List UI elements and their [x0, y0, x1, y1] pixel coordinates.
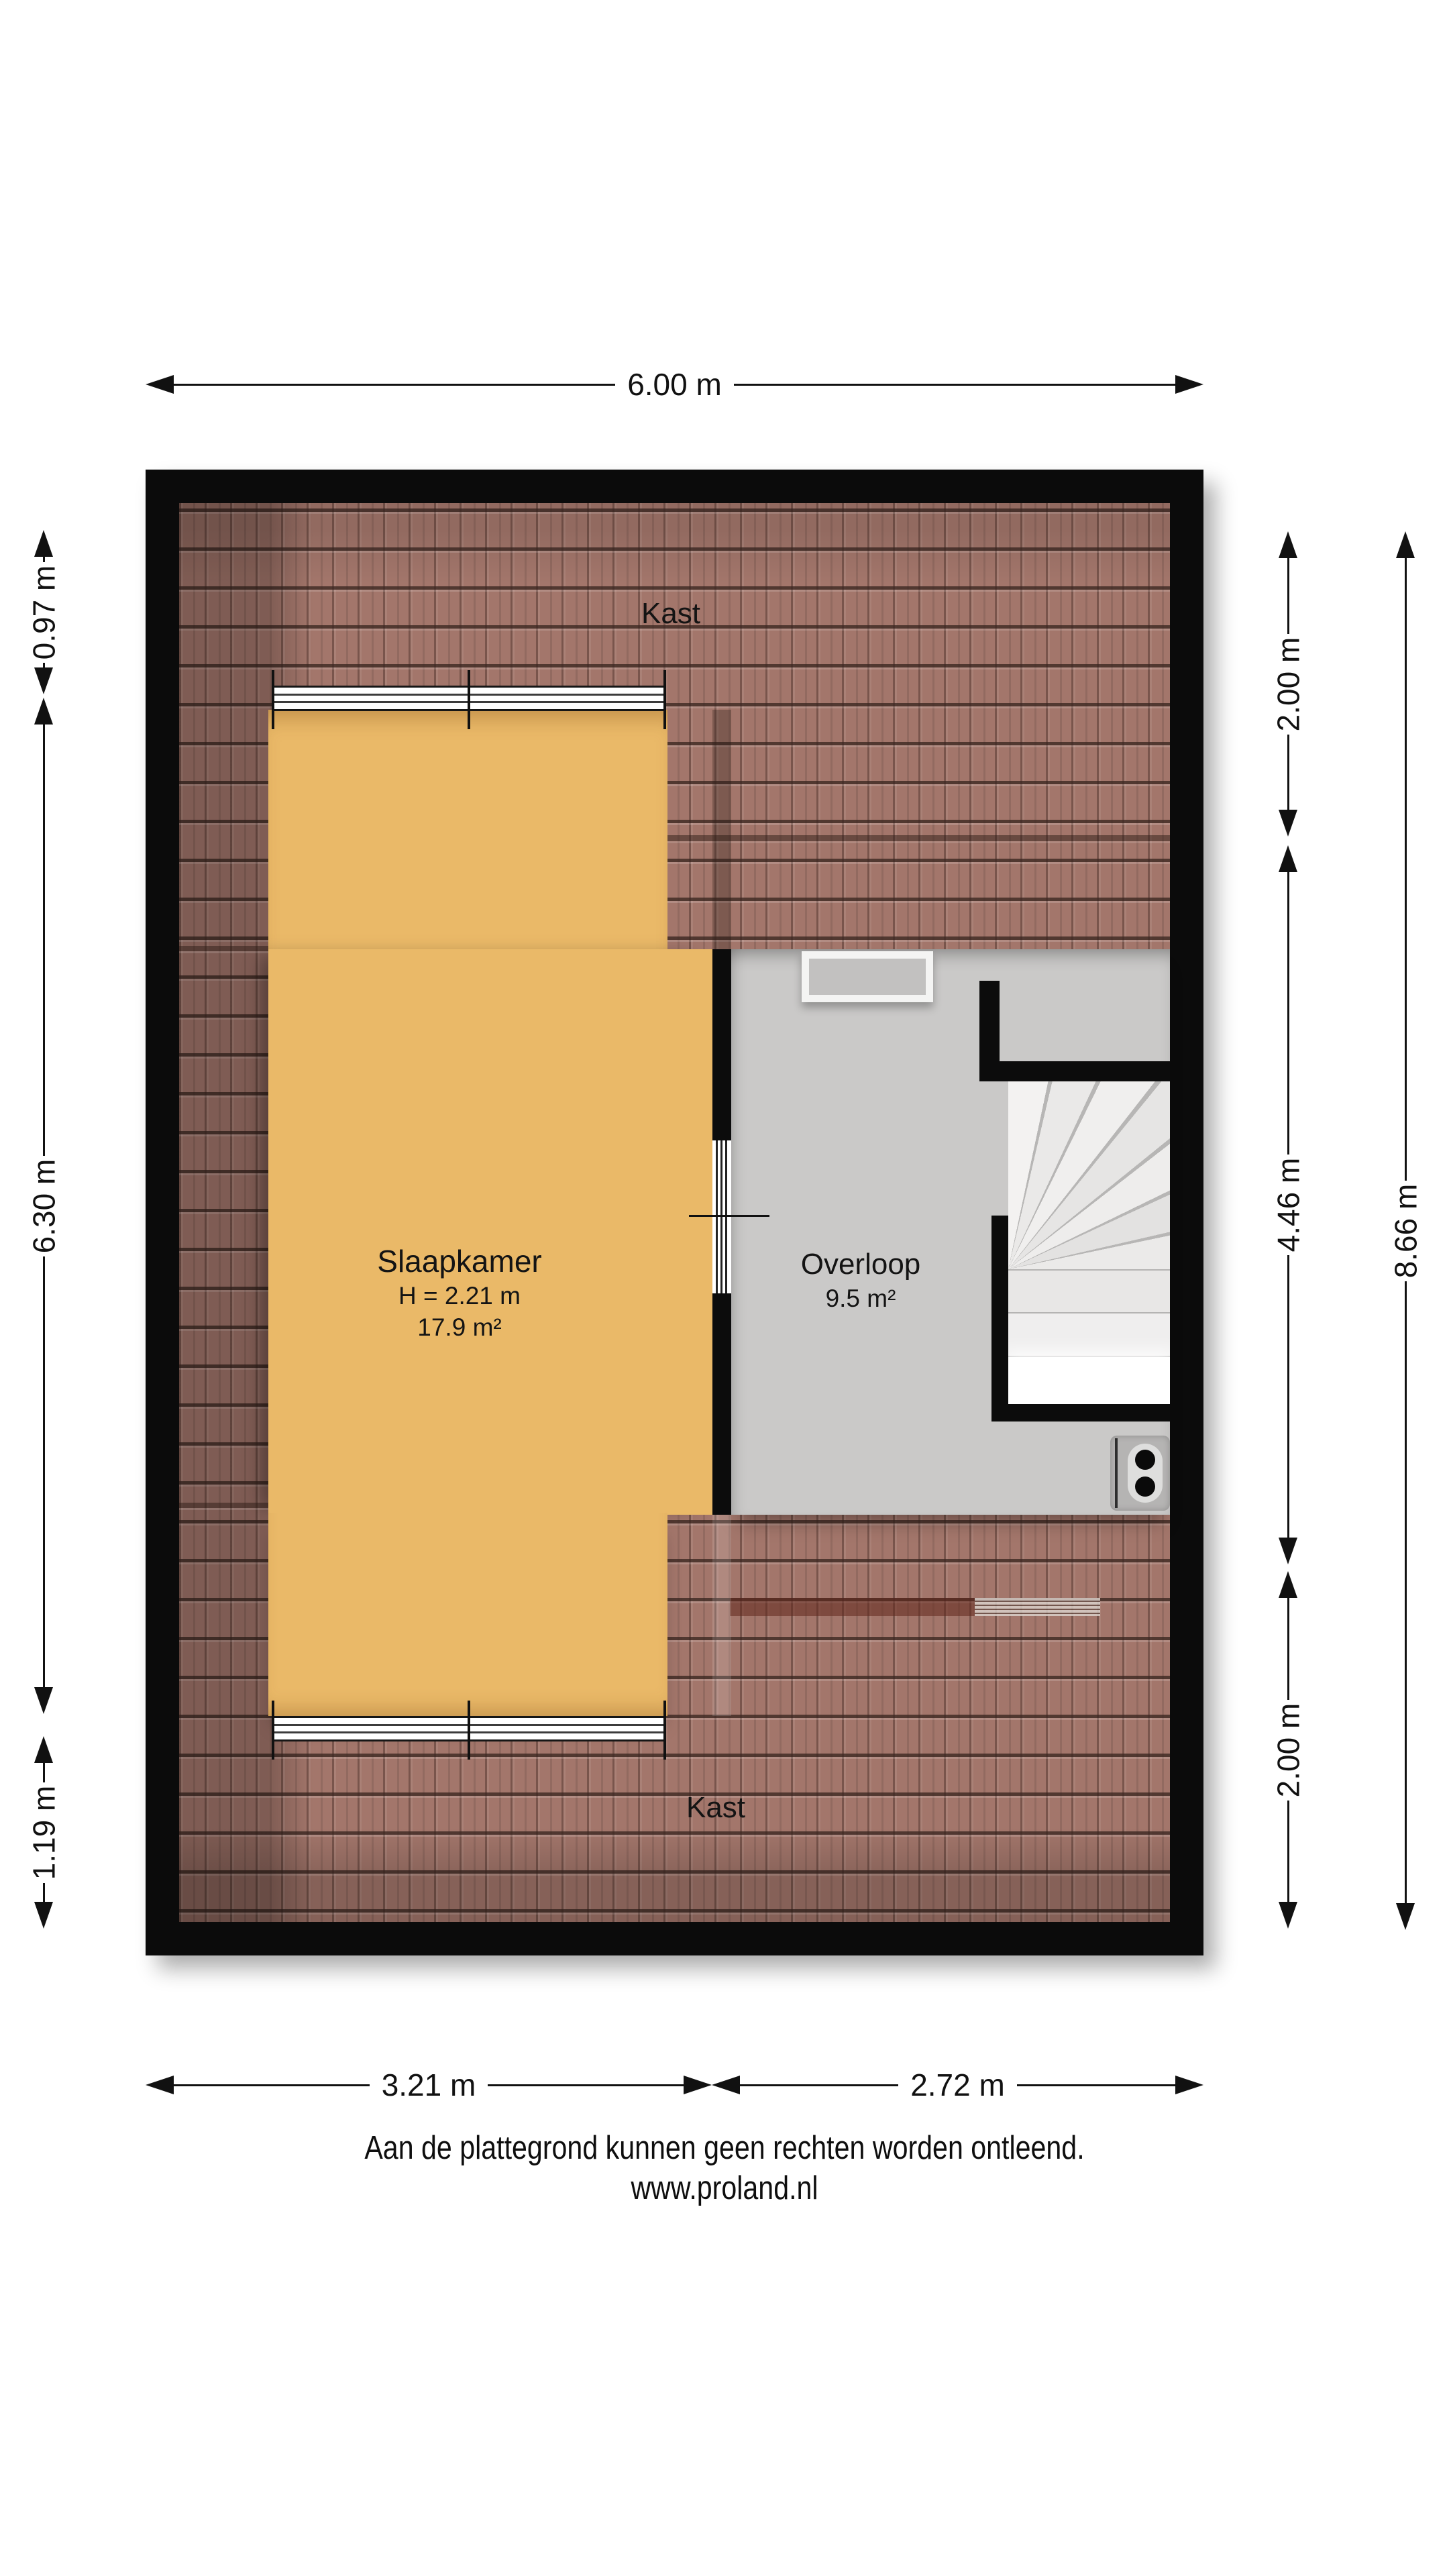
mechanical-ventilation-unit [1110, 1436, 1170, 1511]
dimension-line [1287, 558, 1289, 634]
mv-unit-dot [1135, 1477, 1155, 1497]
stair-tread [1008, 1313, 1170, 1357]
label-kast-top: Kast [604, 596, 738, 632]
dimension-bottom-left: 3.21 m [146, 2070, 712, 2100]
arrow-up-icon [1279, 845, 1297, 872]
arrow-up-icon [1279, 1571, 1297, 1598]
dimension-line [1287, 1598, 1289, 1700]
dimension-label: 6.30 m [29, 1156, 58, 1256]
arrow-down-icon [34, 667, 53, 694]
arrow-down-icon [34, 1687, 53, 1714]
dimension-right-top: 2.00 m [1273, 531, 1303, 837]
arrow-right-icon [1175, 375, 1203, 394]
dimension-line [1287, 1255, 1289, 1538]
dimension-line [43, 663, 45, 668]
dimension-label: 0.97 m [29, 562, 58, 663]
window-top [272, 686, 666, 711]
dimension-label: 4.46 m [1273, 1155, 1303, 1255]
dimension-line [43, 1883, 45, 1902]
arrow-up-icon [1396, 531, 1415, 558]
label-slaapkamer: Slaapkamer H = 2.21 m 17.9 m² [292, 1242, 627, 1344]
footer-website: www.proland.nl [0, 2168, 1449, 2208]
arrow-down-icon [34, 1902, 53, 1929]
dimension-line [734, 384, 1175, 386]
dimension-line [1287, 872, 1289, 1155]
wall-shadow [712, 1515, 731, 1716]
dimension-line [488, 2084, 684, 2086]
dimension-right-middle: 4.46 m [1273, 845, 1303, 1564]
floor-plan: Kast Slaapkamer H = 2.21 m 17.9 m² Overl… [146, 470, 1203, 1955]
window-tick [468, 1701, 470, 1760]
room-name: Overloop [760, 1246, 961, 1283]
arrow-up-icon [34, 1736, 53, 1763]
dimension-label: 2.72 m [898, 2067, 1017, 2103]
dimension-label: 8.66 m [1391, 1181, 1420, 1281]
dimension-label: 6.00 m [615, 366, 734, 402]
mv-unit-pill [1128, 1444, 1163, 1503]
roof-band-vent [975, 1598, 1100, 1616]
staircase [1008, 1081, 1170, 1404]
mv-unit-line [1115, 1438, 1118, 1508]
roof-seam-left-upper [179, 946, 268, 951]
footer-disclaimer: Aan de plattegrond kunnen geen rechten w… [0, 2128, 1449, 2168]
dimension-line [43, 1256, 45, 1688]
stair-wall [979, 1061, 1170, 1081]
dimension-line [43, 557, 45, 562]
stair-landing [1008, 1357, 1170, 1404]
room-slaapkamer-upper [268, 710, 667, 951]
dimension-right-total: 8.66 m [1391, 531, 1420, 1930]
dimension-line [174, 384, 615, 386]
roof-seam-left-lower [179, 1503, 268, 1508]
dimension-label: 2.00 m [1273, 634, 1303, 735]
arrow-down-icon [1279, 1538, 1297, 1564]
window-tick [663, 1701, 666, 1760]
dimension-label: 3.21 m [370, 2067, 488, 2103]
dimension-line [43, 1763, 45, 1782]
stair-wall [991, 1216, 1008, 1404]
stair-wall [991, 1404, 1170, 1421]
room-area: 9.5 m² [760, 1283, 961, 1314]
arrow-left-icon [146, 2076, 174, 2094]
arrow-right-icon [684, 2076, 712, 2094]
dimension-label: 2.00 m [1273, 1700, 1303, 1801]
dimension-left-middle: 6.30 m [29, 698, 58, 1714]
arrow-down-icon [1396, 1903, 1415, 1930]
dimension-line [1017, 2084, 1175, 2086]
dimension-label: 1.19 m [29, 1782, 58, 1883]
arrow-up-icon [34, 530, 53, 557]
window-tick [272, 1701, 274, 1760]
room-name: Slaapkamer [292, 1242, 627, 1280]
arrow-left-icon [712, 2076, 740, 2094]
dimension-line [1405, 1281, 1407, 1904]
stair-winders [1008, 1081, 1170, 1269]
arrow-up-icon [1279, 531, 1297, 558]
label-overloop: Overloop 9.5 m² [760, 1246, 961, 1314]
window-tick [272, 670, 274, 729]
arrow-right-icon [1175, 2076, 1203, 2094]
door-slaapkamer [712, 1140, 731, 1293]
label-kast-bottom: Kast [642, 1790, 790, 1826]
room-slaapkamer [268, 949, 712, 1515]
window-bottom [272, 1716, 666, 1741]
room-slaapkamer-lower [268, 1513, 667, 1716]
window-tick [663, 670, 666, 729]
mv-unit-dot [1135, 1450, 1155, 1470]
door-tick [689, 1215, 769, 1217]
dimension-left-top: 0.97 m [29, 530, 58, 694]
arrow-up-icon [34, 698, 53, 724]
dimension-left-bottom: 1.19 m [29, 1736, 58, 1929]
disclaimer-text: Aan de plattegrond kunnen geen rechten w… [116, 2128, 1333, 2168]
dimension-line [1405, 558, 1407, 1181]
dimension-line [174, 2084, 370, 2086]
window-tick [468, 670, 470, 729]
dimension-line [1287, 1801, 1289, 1902]
dimension-width-total: 6.00 m [146, 370, 1203, 399]
arrow-down-icon [1279, 810, 1297, 837]
skylight-window [802, 951, 933, 1002]
dimension-line [1287, 735, 1289, 810]
arrow-down-icon [1279, 1902, 1297, 1929]
stair-tread [1008, 1269, 1170, 1313]
dimension-right-bottom: 2.00 m [1273, 1571, 1303, 1929]
dimension-line [740, 2084, 898, 2086]
website-text: www.proland.nl [116, 2168, 1333, 2208]
arrow-left-icon [146, 375, 174, 394]
room-area: 17.9 m² [292, 1311, 627, 1343]
dimension-line [43, 724, 45, 1156]
dimension-bottom-right: 2.72 m [712, 2070, 1203, 2100]
roof-band [730, 1598, 975, 1616]
wall-shadow [712, 710, 731, 949]
room-ceiling-height: H = 2.21 m [292, 1280, 627, 1311]
